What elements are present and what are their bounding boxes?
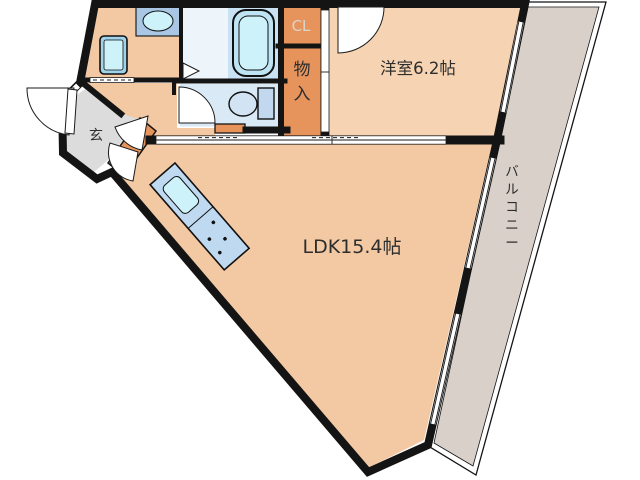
ldk-label: LDK15.4帖 — [303, 236, 402, 258]
balcony-label: バルコニー — [505, 164, 519, 251]
western-room-label: 洋室6.2帖 — [380, 59, 456, 78]
closet-label: CL — [292, 17, 311, 35]
western-sliding-door — [321, 10, 329, 132]
entrance-label: 玄 — [89, 127, 103, 144]
toilet-step — [215, 124, 245, 133]
floor-plan-page: バルコニー — [0, 0, 640, 480]
washing-machine-icon — [100, 36, 127, 74]
washbasin-icon — [136, 7, 180, 36]
floor-plan: バルコニー — [0, 0, 640, 480]
bathtub-icon — [233, 10, 274, 76]
